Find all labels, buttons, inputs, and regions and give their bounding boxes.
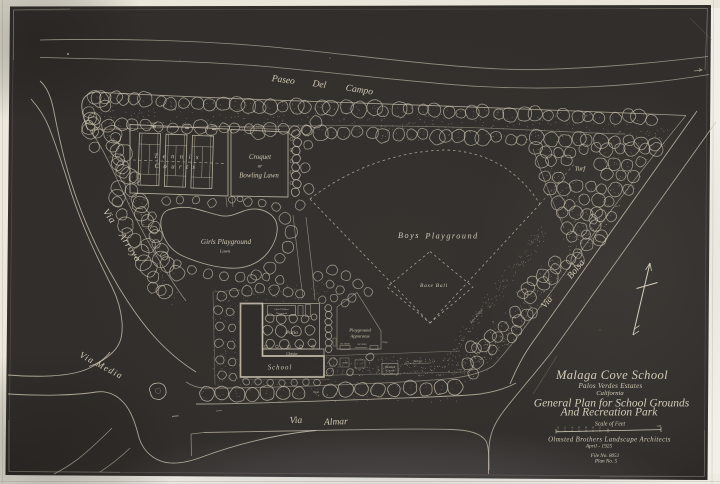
svg-text:Playground: Playground: [424, 232, 478, 241]
svg-text:sw. beam: sw. beam: [340, 343, 350, 346]
svg-text:April - 1925: April - 1925: [585, 444, 613, 450]
svg-text:Palos Verdes Estates: Palos Verdes Estates: [577, 382, 642, 390]
svg-text:Boys: Boys: [398, 231, 420, 240]
svg-text:Bowling Lawn: Bowling Lawn: [239, 173, 279, 180]
svg-text:Almar: Almar: [323, 417, 348, 428]
svg-text:Courts: Courts: [386, 370, 394, 373]
svg-text:Apparatus: Apparatus: [349, 334, 369, 339]
svg-text:Base Ball: Base Ball: [420, 283, 448, 289]
svg-text:California: California: [596, 390, 624, 397]
svg-text:Malaga Cove School: Malaga Cove School: [555, 368, 668, 382]
svg-text:Lawn: Lawn: [219, 249, 231, 254]
svg-text:Turf: Turf: [575, 166, 587, 173]
svg-text:Gate: Gate: [184, 123, 190, 126]
svg-text:Swings: Swings: [414, 359, 423, 363]
svg-text:Plan No. 5: Plan No. 5: [594, 459, 618, 465]
svg-text:Gate: Gate: [313, 390, 320, 394]
svg-text:100: 100: [657, 425, 662, 428]
svg-text:And Recreation Park: And Recreation Park: [560, 407, 659, 419]
svg-text:or: or: [258, 165, 263, 170]
svg-text:Gate: Gate: [151, 122, 157, 125]
svg-text:Del: Del: [311, 79, 327, 91]
svg-text:School: School: [268, 365, 293, 372]
svg-text:Playground: Playground: [275, 312, 288, 315]
svg-text:Little Children: Little Children: [273, 308, 289, 311]
svg-text:sand: sand: [343, 362, 349, 365]
svg-text:Cloister: Cloister: [286, 352, 298, 356]
svg-text:see saws: see saws: [357, 343, 366, 346]
svg-text:Fence: Fence: [255, 126, 264, 129]
svg-text:Courts: Courts: [154, 163, 199, 171]
svg-text:Tennis: Tennis: [154, 153, 204, 161]
svg-text:Girls Playground: Girls Playground: [201, 238, 252, 246]
svg-text:Via: Via: [290, 416, 303, 426]
svg-text:Olmsted Brothers Landscape A: Olmsted Brothers Landscape Architects: [548, 437, 671, 444]
svg-text:Croquet: Croquet: [249, 154, 272, 161]
svg-text:Gate: Gate: [211, 125, 217, 128]
svg-text:Playground: Playground: [348, 328, 371, 333]
svg-text:rings: rings: [382, 341, 387, 344]
